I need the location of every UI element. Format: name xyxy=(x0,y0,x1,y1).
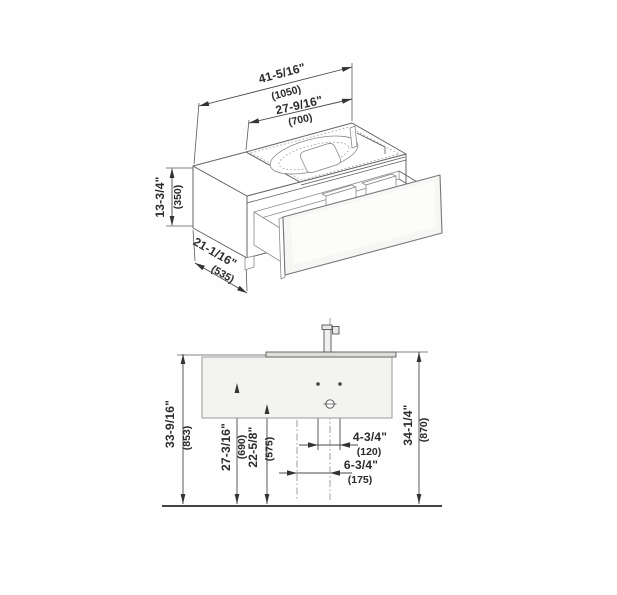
label-height-in: 13-3/4" xyxy=(153,176,167,217)
label-drain-height-in: 22-5/8" xyxy=(246,426,260,467)
label-drain-offset-mm: (175) xyxy=(348,474,373,486)
label-height-mm: (350) xyxy=(172,185,184,210)
faucet-knob xyxy=(333,327,340,335)
faucet-pipe xyxy=(324,329,331,352)
isometric-view: 41-5/16" (1050) 27-9/16" (700) 13-3/4" (… xyxy=(153,60,442,293)
faucet-hole-dot-left xyxy=(316,382,320,386)
front-cabinet-body xyxy=(202,357,392,418)
label-counter-underside-height-mm: (853) xyxy=(181,426,193,451)
countertop-slab xyxy=(266,352,396,357)
label-hole-spacing-in: 4-3/4" xyxy=(353,430,387,444)
label-faucet-hole-height-in: 27-3/16" xyxy=(219,423,233,471)
technical-drawing-page: 41-5/16" (1050) 27-9/16" (700) 13-3/4" (… xyxy=(0,0,617,595)
label-counter-top-height-in: 34-1/4" xyxy=(401,404,415,445)
front-elevation-view: 33-9/16" (853) 27-3/16" (690) 22-5/8" (5… xyxy=(162,318,442,506)
faucet-flange xyxy=(322,325,332,330)
cabinet-front-foot xyxy=(245,256,254,270)
label-hole-spacing-mm: (120) xyxy=(357,446,382,458)
label-counter-top-height-mm: (870) xyxy=(418,418,430,443)
faucet-hole-dot-right xyxy=(338,382,342,386)
faucet-graphic xyxy=(322,325,339,352)
label-counter-underside-height-in: 33-9/16" xyxy=(163,400,177,448)
vanity-dimension-drawing: 41-5/16" (1050) 27-9/16" (700) 13-3/4" (… xyxy=(0,0,617,595)
label-overall-width-in: 41-5/16" xyxy=(257,60,307,86)
label-drain-offset-in: 6-3/4" xyxy=(344,458,378,472)
label-drain-height-mm: (575) xyxy=(264,437,276,462)
